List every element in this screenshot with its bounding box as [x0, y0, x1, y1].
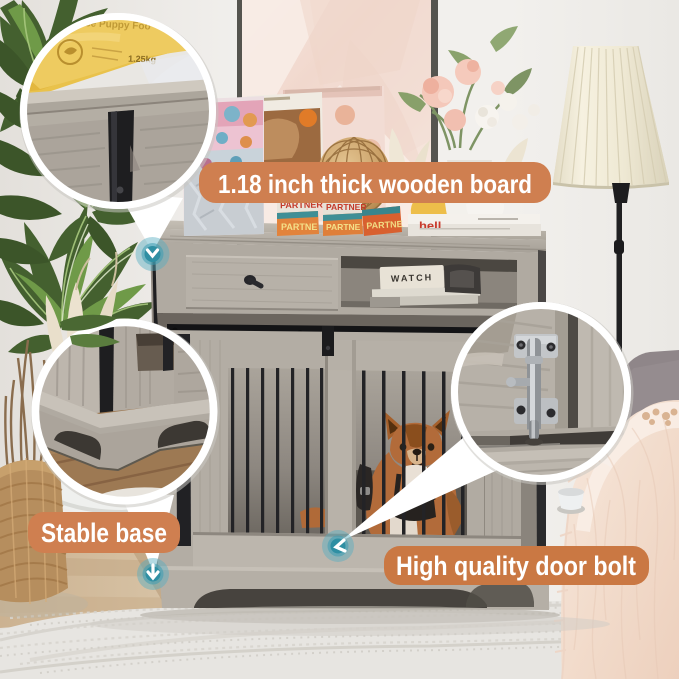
svg-text:WATCH: WATCH: [391, 272, 434, 283]
svg-text:PARTNE: PARTNE: [366, 219, 403, 231]
svg-text:hell: hell: [419, 219, 441, 232]
svg-text:PARTNE: PARTNE: [281, 222, 317, 232]
svg-text:PARTNE: PARTNE: [326, 222, 361, 232]
svg-text:1.18 inch thick wooden board: 1.18 inch thick wooden board: [218, 169, 532, 199]
svg-text:Stable base: Stable base: [41, 518, 167, 548]
svg-text:PARTNER: PARTNER: [326, 202, 366, 212]
svg-text:High quality door bolt: High quality door bolt: [396, 551, 636, 581]
